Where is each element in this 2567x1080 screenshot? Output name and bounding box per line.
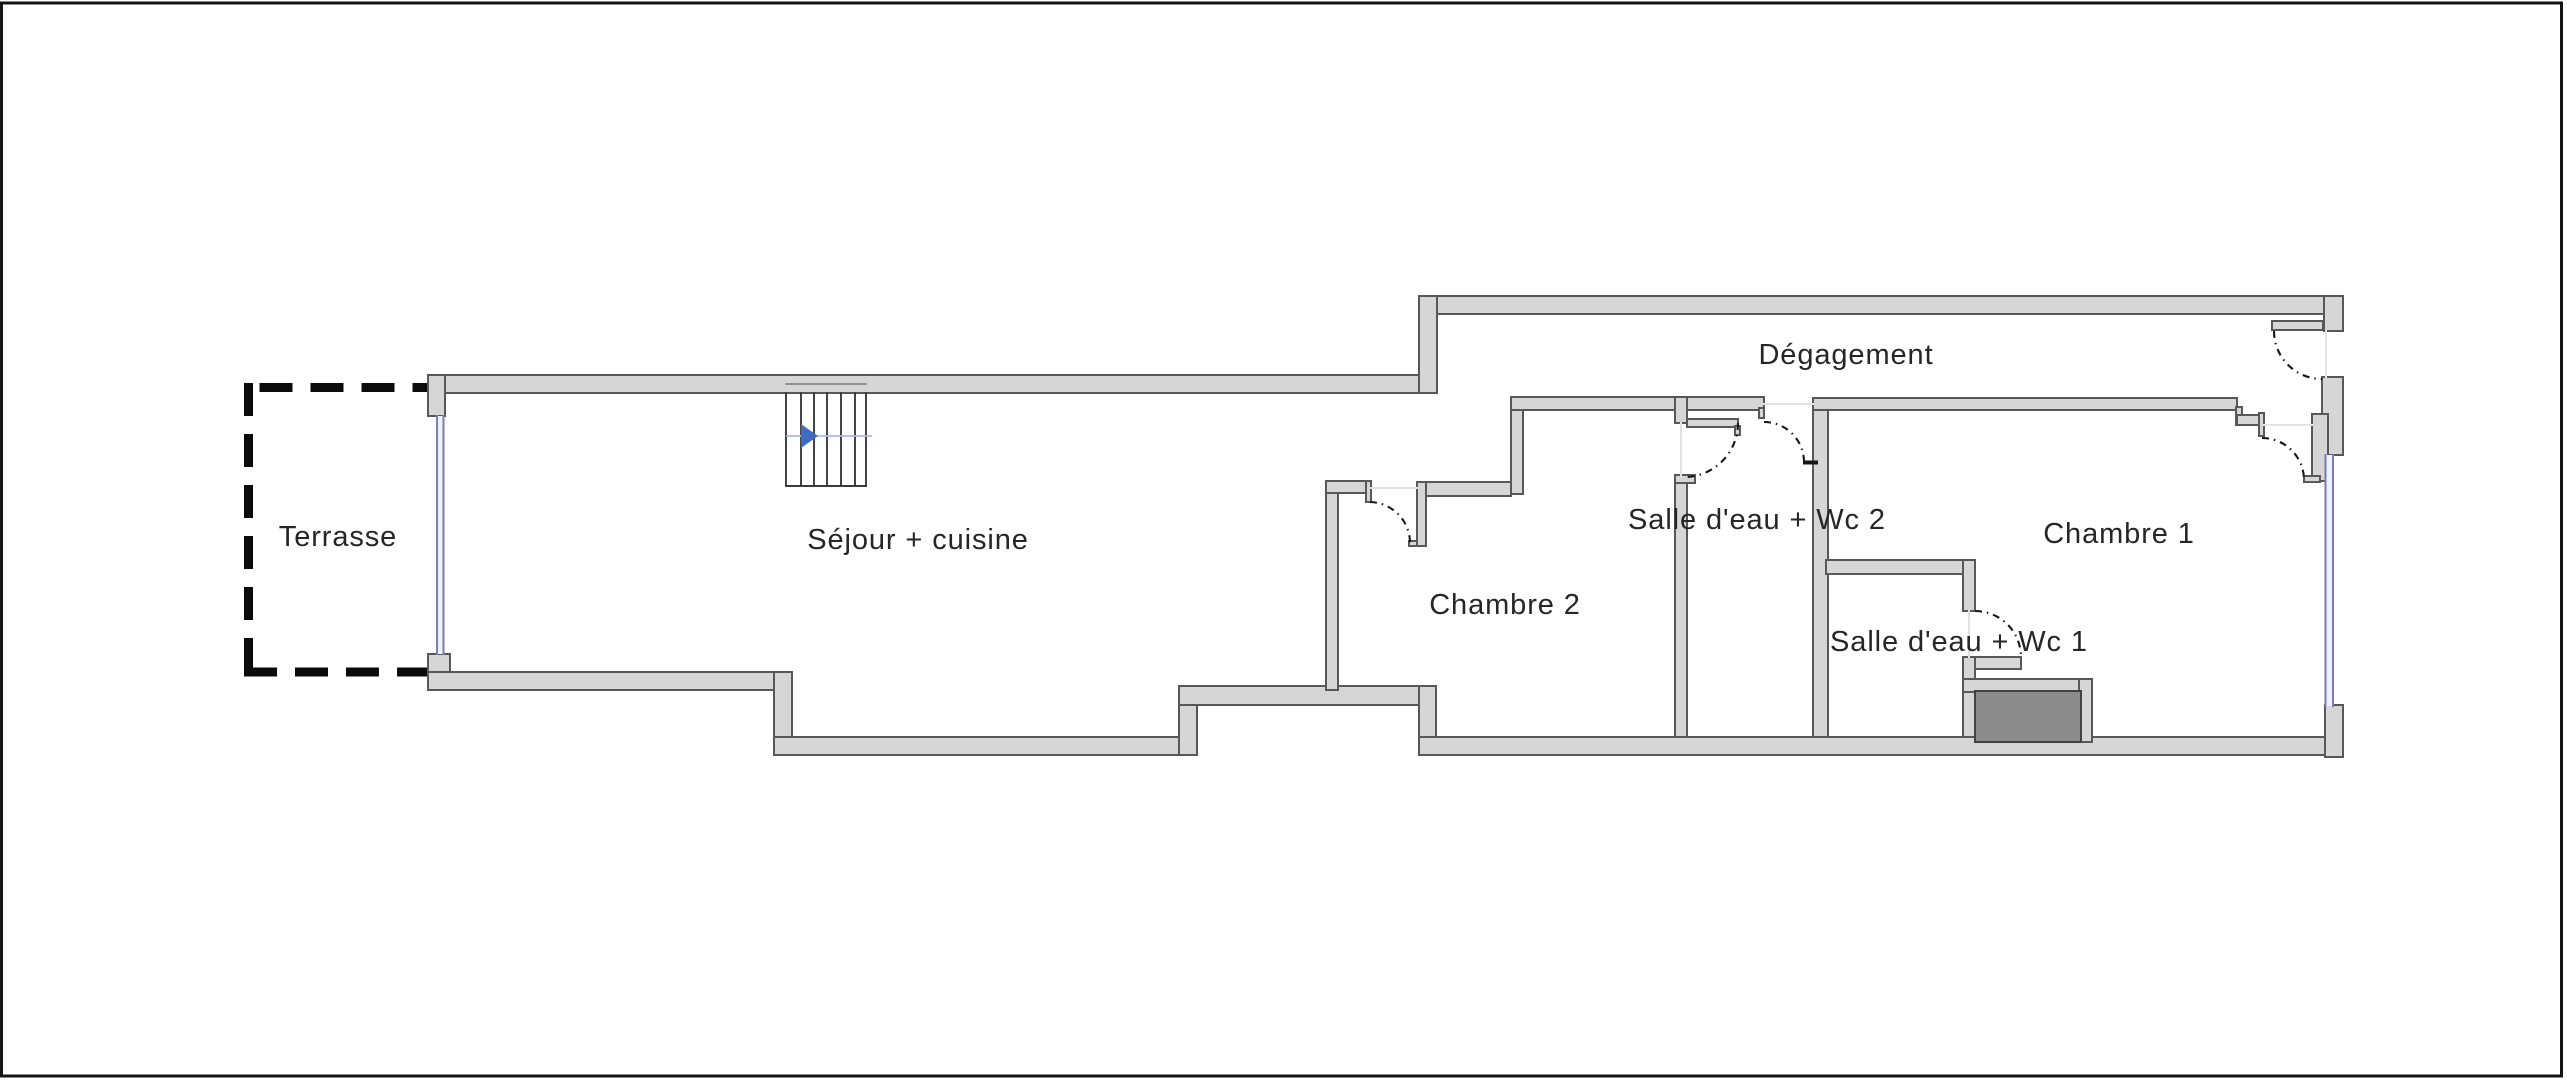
svg-text:Terrasse: Terrasse	[279, 521, 397, 553]
svg-text:Dégagement: Dégagement	[1758, 339, 1933, 371]
svg-text:Séjour + cuisine: Séjour + cuisine	[807, 524, 1029, 556]
svg-text:Salle d'eau + Wc 2: Salle d'eau + Wc 2	[1628, 504, 1886, 536]
svg-text:Chambre 1: Chambre 1	[2043, 518, 2195, 550]
svg-text:Salle d'eau + Wc 1: Salle d'eau + Wc 1	[1830, 626, 2088, 658]
svg-text:Chambre 2: Chambre 2	[1429, 589, 1581, 621]
